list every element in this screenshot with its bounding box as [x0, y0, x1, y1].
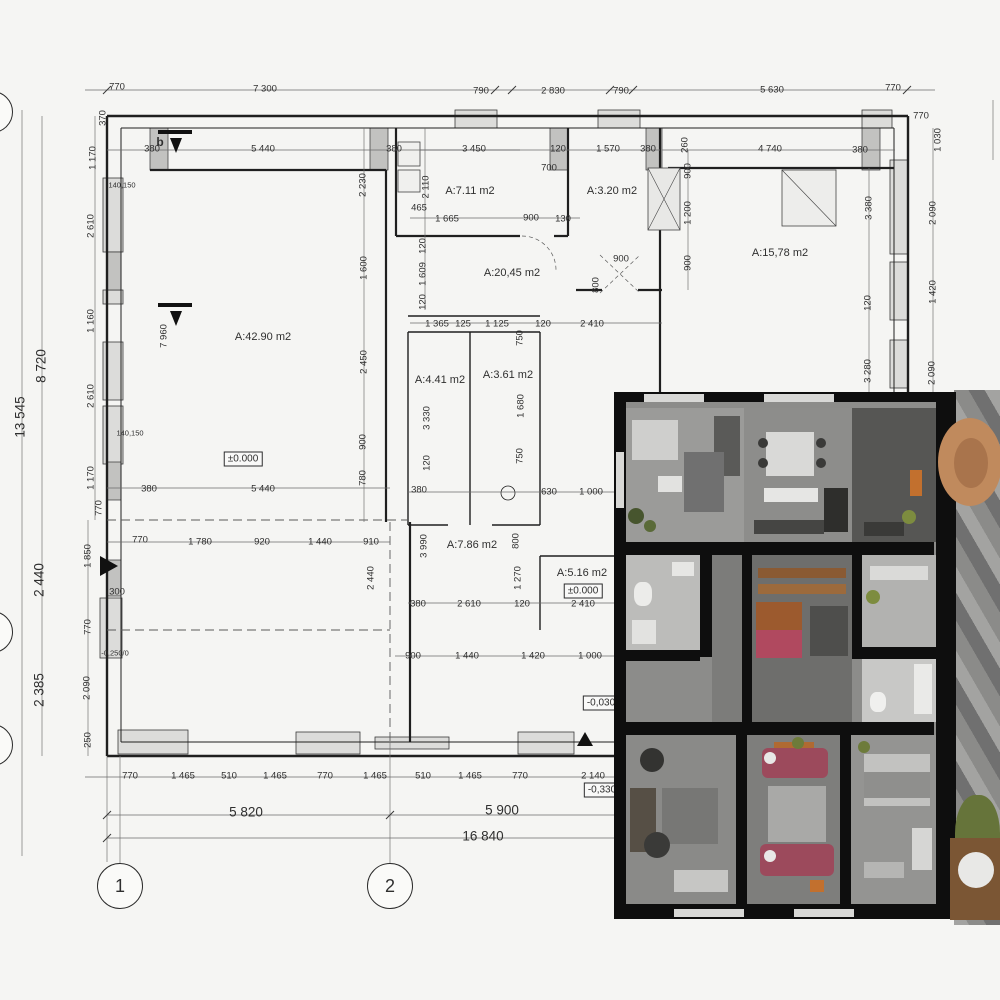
floor-plan-canvas: b 7707 3007902 8307905 6307707701 030370…	[0, 0, 1000, 1000]
render-wall	[700, 555, 712, 657]
render-wall	[852, 647, 936, 659]
render-plant	[858, 741, 870, 753]
render-wall	[626, 722, 934, 735]
render-dining-table	[766, 432, 814, 476]
render-washer	[632, 620, 656, 644]
render-office-chair	[640, 748, 664, 772]
render-pillow	[764, 850, 776, 862]
render-chair	[816, 458, 826, 468]
render-chair	[644, 832, 670, 858]
render-shelf-wood	[758, 568, 846, 578]
kitchen-fixtures	[398, 142, 836, 230]
render-deck-table	[958, 852, 994, 888]
render-hall-lower	[712, 555, 742, 722]
render-bed	[768, 786, 826, 842]
render-rug	[662, 788, 718, 844]
render-cabinet	[674, 870, 728, 892]
render-wall	[840, 735, 851, 904]
render-toilet	[634, 582, 652, 606]
render-wall	[736, 735, 747, 904]
render-ottoman	[810, 880, 824, 892]
render-bottle-shelf	[910, 470, 922, 496]
dashed-lines	[107, 520, 408, 742]
render-bed-living	[632, 420, 678, 460]
render-dresser	[912, 828, 932, 870]
render-cabinet-red	[756, 602, 802, 630]
render-window	[674, 909, 744, 917]
render-wall	[852, 555, 862, 659]
render-plant	[792, 737, 804, 749]
render-toilet	[870, 692, 886, 712]
render-shelf-wood	[758, 584, 846, 594]
render-window	[644, 394, 704, 402]
render-blanket	[864, 772, 930, 798]
render-window	[794, 909, 854, 917]
render-bench	[864, 862, 904, 878]
render-overlay-3d	[614, 392, 956, 919]
render-kitchen-island	[764, 488, 818, 502]
render-pillow	[764, 752, 776, 764]
render-counter-dark	[824, 488, 848, 532]
render-coffee-table	[658, 476, 682, 492]
render-sink	[672, 562, 694, 576]
render-wall	[742, 555, 752, 722]
render-sofa	[684, 452, 724, 512]
render-chair	[758, 438, 768, 448]
render-vanity	[914, 664, 932, 714]
render-chair	[816, 438, 826, 448]
section-markers	[100, 130, 593, 746]
render-plant	[644, 520, 656, 532]
render-plant	[902, 510, 916, 524]
render-wall	[626, 650, 700, 661]
render-round-chair-cushion	[954, 438, 988, 488]
render-window	[616, 452, 624, 508]
render-window	[764, 394, 834, 402]
render-wall	[626, 542, 934, 555]
render-plant	[628, 508, 644, 524]
render-chair	[758, 458, 768, 468]
render-bench	[870, 566, 928, 580]
render-plant	[866, 590, 880, 604]
render-counter	[810, 606, 848, 656]
render-cabinet-red	[756, 630, 802, 658]
render-counter	[754, 520, 824, 534]
render-bench	[864, 522, 904, 536]
